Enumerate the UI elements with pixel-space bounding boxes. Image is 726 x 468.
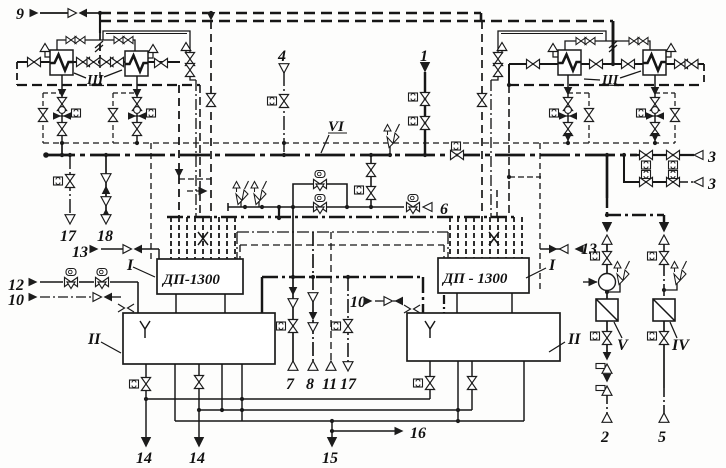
svg-text:ДП - 1300: ДП - 1300 [441,271,508,287]
svg-text:3: 3 [707,149,716,166]
svg-text:9: 9 [16,6,24,23]
svg-text:5: 5 [658,429,666,446]
svg-text:2: 2 [600,429,609,446]
svg-text:10: 10 [8,292,24,309]
svg-text:4: 4 [277,48,286,65]
svg-text:16: 16 [410,425,426,442]
svg-text:8: 8 [306,376,314,393]
svg-text:11: 11 [322,376,337,393]
svg-text:I: I [548,257,556,274]
svg-text:18: 18 [97,228,113,245]
svg-text:15: 15 [322,450,338,467]
svg-text:7: 7 [286,376,295,393]
svg-text:IV: IV [671,337,690,354]
svg-text:V: V [617,337,629,354]
svg-text:6: 6 [440,201,448,218]
svg-text:17: 17 [340,376,357,393]
svg-text:14: 14 [189,450,205,467]
svg-text:I: I [126,257,134,274]
svg-text:II: II [87,331,101,348]
svg-text:17: 17 [60,228,77,245]
svg-text:3: 3 [707,176,716,193]
svg-text:ДП-1300: ДП-1300 [161,272,220,288]
svg-text:II: II [567,331,581,348]
svg-text:13: 13 [72,244,88,261]
svg-text:14: 14 [136,450,152,467]
